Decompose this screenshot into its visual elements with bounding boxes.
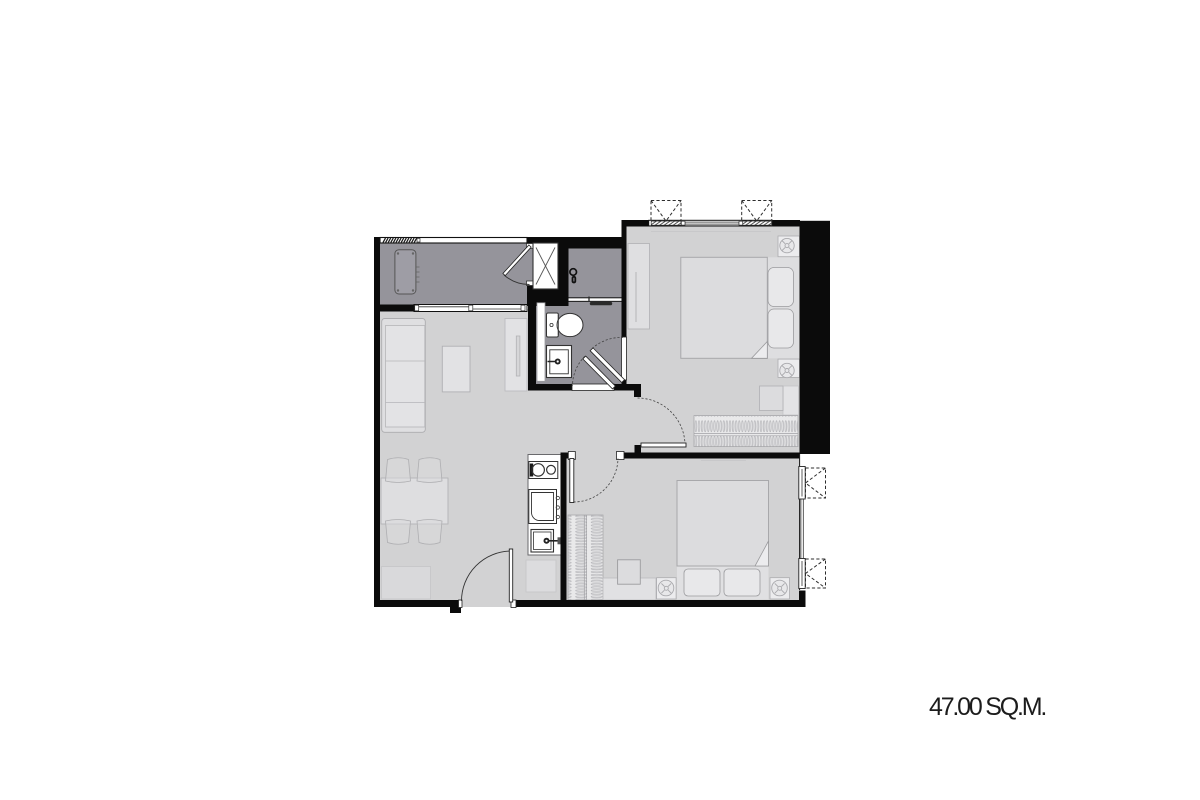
svg-text:47.00 SQ.M.: 47.00 SQ.M.	[929, 693, 1045, 721]
